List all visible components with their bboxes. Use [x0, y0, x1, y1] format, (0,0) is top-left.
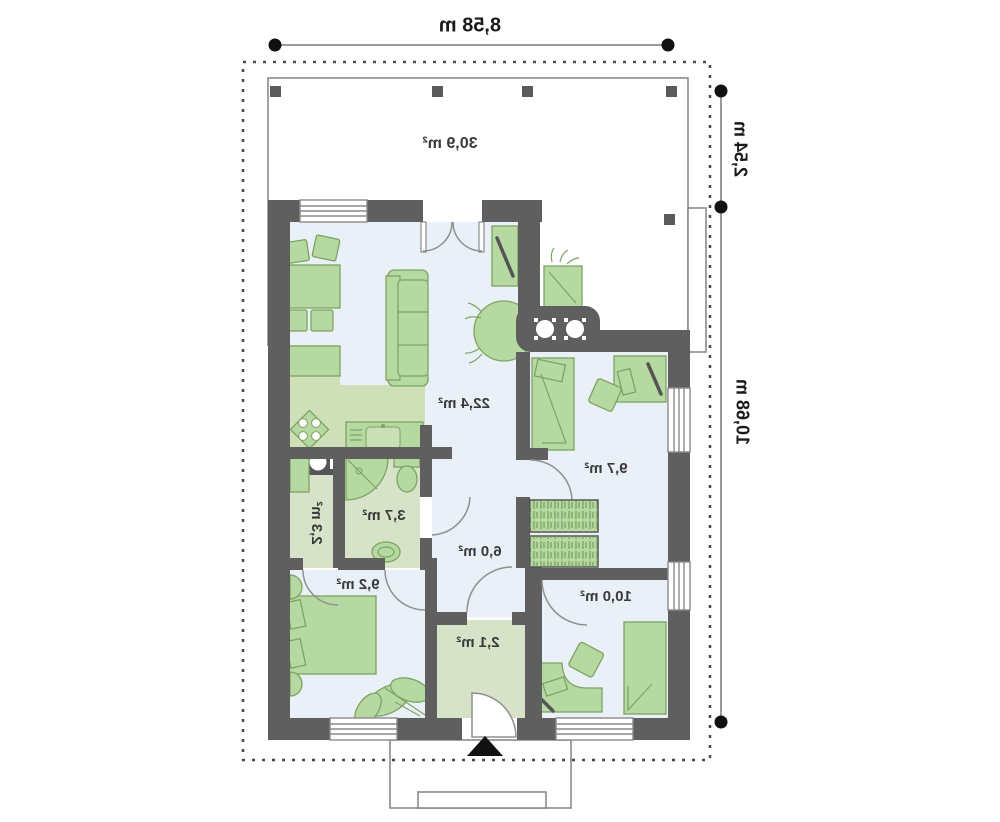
single-bed-lower	[624, 622, 666, 714]
wall-kitchen-bath	[290, 447, 432, 459]
dining-chair	[312, 235, 340, 262]
wall-bath-hall	[420, 425, 432, 497]
bedroom-ur-window	[668, 388, 690, 452]
bedroom-lr-window	[668, 562, 690, 610]
sofa	[386, 270, 428, 386]
single-bed-upper	[532, 358, 574, 450]
tv-bench	[492, 226, 518, 286]
desk-upper	[614, 356, 666, 402]
storage-shelf	[290, 456, 309, 492]
porch-step	[418, 792, 546, 808]
living-area-label: 22,4 m²	[438, 395, 490, 412]
bedroom-ur-area-label: 9,7 m²	[584, 460, 627, 477]
bathroom-area-label: 3,7 m²	[362, 507, 405, 524]
dining-chair	[311, 310, 333, 331]
bedroom-left-window	[330, 718, 397, 740]
wall-wardrobe-left	[516, 497, 530, 568]
dim-lower-right-label: 10,68 m	[732, 379, 752, 445]
dining-table	[282, 265, 340, 308]
bedroom-left-area-label: 9,2 m²	[336, 576, 379, 593]
wall-entry-room	[525, 565, 542, 718]
hall-area-label: 6,0 m²	[458, 543, 501, 560]
wall-living-room97	[516, 352, 530, 460]
entry-area-label: 2,1 m²	[456, 634, 499, 651]
terrace-area-label: 30,9 m²	[422, 135, 477, 152]
wall-left	[268, 200, 290, 740]
wall-bedroom-entry	[425, 558, 437, 718]
floor-plan-drawing: 8,58 m 2,54 m 10,68 m 30,9 m² 22,4 m² 9,…	[0, 0, 1000, 822]
storage-area-label: 2,3 m²	[308, 501, 325, 544]
room10-window	[556, 718, 633, 740]
bedroom-lr-area-label: 10,0 m²	[580, 588, 632, 605]
floor-plan-page: 8,58 m 2,54 m 10,68 m 30,9 m² 22,4 m² 9,…	[0, 0, 1000, 822]
dimension-right: 2,54 m 10,68 m	[715, 85, 753, 729]
terrace-side-step	[688, 208, 706, 352]
wall-storage-bath	[333, 458, 345, 568]
dim-upper-right-label: 2,54 m	[730, 121, 750, 177]
dimension-top: 8,58 m	[269, 14, 675, 51]
chimney	[516, 306, 600, 352]
living-room-window	[300, 200, 367, 222]
dim-width-label: 8,58 m	[439, 14, 501, 36]
double-bed	[284, 596, 376, 674]
